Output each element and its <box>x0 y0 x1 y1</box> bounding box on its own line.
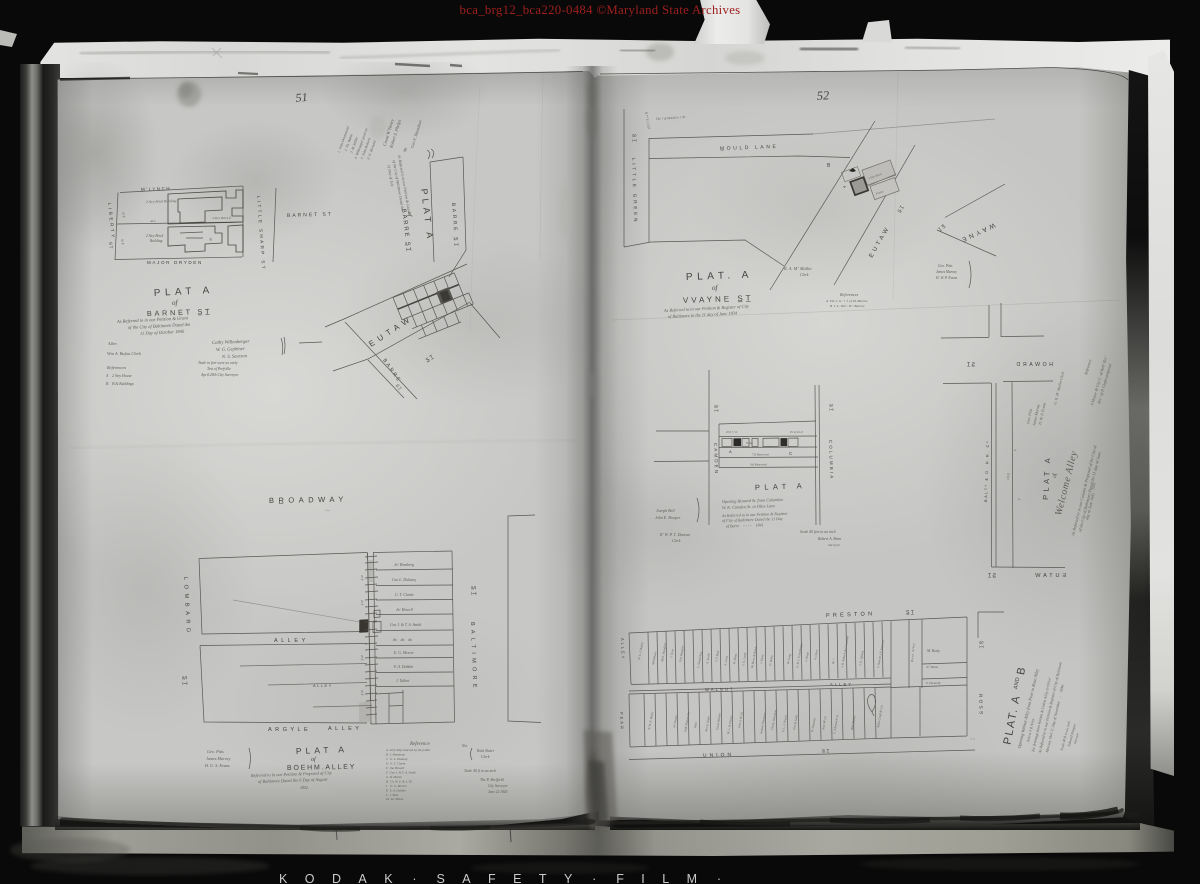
svg-text:Geo. Pitts: Geo. Pitts <box>207 749 224 754</box>
svg-text:The ? of Mould in ? 45′: The ? of Mould in ? 45′ <box>656 115 686 121</box>
svg-text:ALLEY: ALLEY <box>830 682 853 687</box>
svg-text:D G. T. Clarke: D G. T. Clarke <box>385 762 406 766</box>
svg-text:of Baltimore Dated the 6 Day o: of Baltimore Dated the 6 Day of August <box>258 777 329 784</box>
svg-text:a.: a. <box>1014 448 1017 452</box>
svg-text:PLAT A: PLAT A <box>296 744 348 756</box>
svg-text:MAJOR DRYDEN: MAJOR DRYDEN <box>147 260 203 265</box>
svg-text:Nº H. K. Bailey: Nº H. K. Bailey <box>647 711 654 732</box>
svg-text:Robert A. Birm: Robert A. Birm <box>817 537 841 541</box>
svg-text:20 ft: 20 ft <box>360 600 364 606</box>
svg-text:A 2 Stry House: A 2 Stry House <box>105 374 132 378</box>
svg-text:G R. Marsh: G R. Marsh <box>386 775 402 779</box>
svg-text:ALLEY: ALLEY <box>274 638 309 644</box>
svg-text:H. U. S. Evans: H. U. S. Evans <box>204 763 230 768</box>
svg-text:ST: ST <box>108 242 114 250</box>
svg-text:7 ft Reserved: 7 ft Reserved <box>752 453 769 457</box>
svg-text:A. Lantz: A. Lantz <box>723 655 729 667</box>
svg-text:Rʼ W. P. T. Duncan: Rʼ W. P. T. Duncan <box>659 532 690 537</box>
svg-text:52: 52 <box>816 88 829 103</box>
svg-text:Allen: Allen <box>107 341 116 346</box>
svg-text:LOMBARD: LOMBARD <box>182 577 191 637</box>
svg-text:June 22 1845: June 22 1845 <box>488 790 508 794</box>
svg-text:C. Albemarle St.: C. Albemarle St. <box>832 714 839 734</box>
svg-text:Building: Building <box>150 239 163 243</box>
svg-text:Test of Prefville: Test of Prefville <box>207 367 231 371</box>
svg-text:Jane Wº Co: Jane Wº Co <box>821 715 827 730</box>
svg-text:S̲T̲: S̲T̲ <box>714 404 719 413</box>
svg-text:LITTLE SHARP ST: LITTLE SHARP ST <box>256 196 266 271</box>
svg-text:2 Stry Brick Building: 2 Stry Brick Building <box>146 199 177 204</box>
svg-text:A 40 ft Alley laid out by the: A 40 ft Alley laid out by the public <box>385 748 431 752</box>
svg-text:A: A <box>729 449 732 454</box>
svg-text:EUTAW: EUTAW <box>367 313 415 348</box>
svg-text:BALTº & O. R.R. Cº: BALTº & O. R.R. Cº <box>984 440 990 502</box>
svg-text:J. B. Alsbach & Crausmith: J. B. Alsbach & Crausmith <box>840 635 850 668</box>
svg-text:30 ft: 30 ft <box>120 238 125 245</box>
svg-text:Wm Shultz: Wm Shultz <box>850 715 857 731</box>
svg-text:References: References <box>106 365 126 370</box>
svg-text:L. Sonderling: L. Sonderling <box>696 651 703 669</box>
svg-text:B J. Homberg: B J. Homberg <box>386 753 405 757</box>
svg-text:of Barre - - - - 1841: of Barre - - - - 1841 <box>726 522 764 528</box>
svg-text:F. A. Dobbin: F. A. Dobbin <box>393 665 413 669</box>
svg-text:G. R. Mʼ Mullin Clerk: G. R. Mʼ Mullin Clerk <box>1053 371 1065 405</box>
svg-text:N 7° E 213 ft: N 7° E 213 ft <box>644 110 651 130</box>
svg-text:J. Talbot: J. Talbot <box>396 679 410 683</box>
svg-text:9 ft Reserved: 9 ft Reserved <box>750 463 767 467</box>
svg-text:R. A. Mʼ Mullin: R. A. Mʼ Mullin <box>783 266 812 271</box>
svg-text:BALTIMORE: BALTIMORE <box>469 622 477 692</box>
svg-text:of: of <box>1051 472 1058 478</box>
svg-text:E. G. Mercer: E. G. Mercer <box>393 651 414 655</box>
svg-text:PLAT A: PLAT A <box>755 481 806 492</box>
svg-text:J. Olson: J. Olson <box>804 651 810 662</box>
svg-text:MʼLYNCH: MʼLYNCH <box>141 186 171 192</box>
svg-text:A. Jackle: A. Jackle <box>705 652 711 665</box>
svg-text:S̲T̲: S̲T̲ <box>829 403 834 412</box>
svg-text:Geo F. Shanahan: Geo F. Shanahan <box>409 120 422 149</box>
svg-text:20 ft: 20 ft <box>360 690 364 696</box>
svg-text:B. Hams: B. Hams <box>732 652 738 664</box>
svg-text:20 ft: 20 ft <box>360 655 364 661</box>
svg-text:McKilbane: McKilbane <box>651 651 658 666</box>
svg-text:135 ft: 135 ft <box>1006 473 1010 480</box>
svg-text:1852: 1852 <box>300 785 308 790</box>
svg-text:The P. Sheffield: The P. Sheffield <box>480 778 504 782</box>
svg-text:S̲T̲: S̲T̲ <box>906 610 915 616</box>
svg-text:C G. L. Dulaney: C G. L. Dulaney <box>386 757 408 761</box>
svg-text:33 ft: 33 ft <box>121 211 126 218</box>
svg-text:D. Behm: D. Behm <box>768 654 774 667</box>
svg-text:M. Beaty: M. Beaty <box>926 649 940 653</box>
svg-text:Wm A. Bufou Clerk: Wm A. Bufou Clerk <box>107 351 142 356</box>
svg-text:Scale 40 feet to an inch: Scale 40 feet to an inch <box>800 530 836 534</box>
svg-text:ALLEY: ALLEY <box>313 684 333 688</box>
svg-text:H. W. P. Evans: H. W. P. Evans <box>935 276 958 280</box>
svg-text:W. K. Camden St. in Olive Lane: W. K. Camden St. in Olive Lane <box>722 503 776 510</box>
svg-text:CAMDEN: CAMDEN <box>713 443 719 475</box>
svg-text:Nº G. F. Bailey: Nº G. F. Bailey <box>637 641 644 661</box>
svg-text:W. L. & Clancy: W. L. & Clancy <box>726 715 733 735</box>
svg-text:S̲T̲: S̲T̲ <box>425 353 437 363</box>
svg-text:I E. G. Mercer: I E. G. Mercer <box>385 784 408 788</box>
svg-text:F Geo J. & T. A. Smith: F Geo J. & T. A. Smith <box>385 771 416 775</box>
svg-text:M̲OULD LANE: M̲OULD LANE <box>720 144 779 152</box>
svg-text:Geo L. Dulaney: Geo L. Dulaney <box>392 578 416 582</box>
svg-text:Geo J. & T. A. Smith: Geo J. & T. A. Smith <box>390 623 421 627</box>
svg-text:4 Stry Brick ft: 4 Stry Brick ft <box>212 216 232 220</box>
svg-text:B. Simmons: B. Simmons <box>810 717 817 732</box>
svg-text:W. G. Gephlner: W. G. Gephlner <box>216 346 245 352</box>
svg-text:Hem: Hem <box>693 721 698 729</box>
svg-text:S̲T̲: S̲T̲ <box>936 223 947 234</box>
svg-text:HOWARD: HOWARD <box>1014 362 1053 368</box>
svg-text:ROSS: ROSS <box>978 694 984 717</box>
svg-text:Pl. of lot 21: Pl. of lot 21 <box>789 431 804 434</box>
svg-text:Reference: Reference <box>1083 358 1093 376</box>
svg-text:11 Day of October 1846: 11 Day of October 1846 <box>140 329 185 336</box>
svg-text:J. Gray: J. Gray <box>669 648 675 658</box>
svg-text:John Crail & Co: John Crail & Co <box>876 705 884 729</box>
svg-text:COLUMBIA: COLUMBIA <box>828 440 834 481</box>
svg-text:S̲T̲: S̲T̲ <box>966 362 976 368</box>
svg-text:EUTAW: EUTAW <box>1032 573 1066 579</box>
svg-text:S̲T̲: S̲T̲ <box>181 676 188 688</box>
svg-text:Rose Alley: Rose Alley <box>910 642 916 663</box>
svg-text:S̲T̲: S̲T̲ <box>896 203 905 213</box>
svg-text:K F. A. Dobbin: K F. A. Dobbin <box>385 789 406 793</box>
svg-text:S̲T̲: S̲T̲ <box>822 748 831 753</box>
svg-text:2 Stry Brick: 2 Stry Brick <box>146 234 164 238</box>
svg-text:Surveyor: Surveyor <box>828 543 841 547</box>
svg-text:S̲T̲: S̲T̲ <box>979 640 984 649</box>
svg-text:Joseph Bell: Joseph Bell <box>656 508 675 513</box>
svg-text:of: of <box>172 299 179 307</box>
svg-text:Seife Magner &c: Seife Magner &c <box>683 711 691 733</box>
svg-text:51: 51 <box>295 90 308 105</box>
svg-text:Teale 40 ft in an inch: Teale 40 ft in an inch <box>464 769 496 773</box>
svg-text:Grant Winkler: Grant Winkler <box>715 712 722 731</box>
svg-text:ARGYLE: ARGYLE <box>268 727 311 733</box>
svg-text:LITTLE GREEN: LITTLE GREEN <box>631 158 638 224</box>
svg-text:James Murray: James Murray <box>936 270 957 274</box>
svg-text:T. Donnelly: T. Donnelly <box>926 681 941 685</box>
svg-text:Robt Slater: Robt Slater <box>476 749 495 753</box>
svg-text:20 ft: 20 ft <box>360 575 364 581</box>
svg-text:PRESTON: PRESTON <box>826 611 876 619</box>
svg-text:James Murray: James Murray <box>206 756 230 761</box>
svg-text:1845: 1845 <box>1091 482 1097 490</box>
svg-text:AND: AND <box>1013 677 1021 690</box>
svg-text:of: of <box>311 756 317 763</box>
svg-text:W. ?: W. ? <box>831 658 836 664</box>
svg-text:PLAT. A: PLAT. A <box>686 270 753 283</box>
svg-text:Frame: Frame <box>745 442 754 445</box>
svg-text:PLAT A: PLAT A <box>154 285 214 299</box>
svg-text:N. S. Saurson: N. S. Saurson <box>221 353 248 359</box>
svg-text:Geo. Pitts: Geo. Pitts <box>938 264 953 268</box>
svg-text:John E. Hooper: John E. Hooper <box>655 515 681 520</box>
svg-text:EUTAW: EUTAW <box>869 225 892 259</box>
svg-text:Jnº Howell: Jnº Howell <box>396 608 413 612</box>
svg-text:A: A <box>842 185 847 189</box>
svg-text:M Jas Talbot: M Jas Talbot <box>385 797 403 801</box>
svg-text:WAYNE: WAYNE <box>958 221 996 244</box>
svg-text:Welcome Alley: Welcome Alley <box>1053 450 1080 517</box>
svg-text:B B & Buildings: B B & Buildings <box>106 382 134 386</box>
svg-text:G. & T. Friendberger: G. & T. Friendberger <box>795 641 804 668</box>
svg-text:B′: B′ <box>209 237 214 242</box>
svg-text:B J. L. Wmʼ. Wʼ. Barrow: B J. L. Wmʼ. Wʼ. Barrow <box>830 304 865 308</box>
svg-text:LIBERTY: LIBERTY <box>107 203 116 241</box>
svg-text:J. G. Lamb: J. G. Lamb <box>741 652 747 666</box>
svg-text:WALNUT: WALNUT <box>705 686 735 692</box>
svg-text:Jnº Mann: Jnº Mann <box>926 665 939 669</box>
svg-text:UNION: UNION <box>703 752 734 759</box>
svg-text:S̲T̲: S̲T̲ <box>470 586 476 597</box>
svg-text:Jnº Homberg: Jnº Homberg <box>394 563 414 567</box>
svg-text:Mrs E. Smith: Mrs E. Smith <box>704 715 711 733</box>
svg-text:Mr: Mr <box>402 146 409 154</box>
svg-text:C: C <box>789 451 792 456</box>
svg-text:× ×: × × <box>970 737 975 741</box>
svg-text:ALLEY: ALLEY <box>328 726 362 732</box>
svg-text:G. T. Clarke: G. T. Clarke <box>395 593 414 597</box>
svg-text:Geo Humpler: Geo Humpler <box>678 644 685 662</box>
svg-text:April 29th City Surveyor: April 29th City Surveyor <box>200 373 239 377</box>
svg-text:a.: a. <box>1018 497 1021 501</box>
svg-text:BARRE S̲T̲: BARRE S̲T̲ <box>450 203 459 249</box>
svg-text:of: of <box>712 284 719 292</box>
svg-text:20 ft ?? st: 20 ft ?? st <box>726 431 737 434</box>
svg-text:BR̲OADWAY: BR̲OADWAY <box>269 495 348 505</box>
svg-text:Clerk: Clerk <box>672 539 681 543</box>
svg-text:E Jno Howell: E Jno Howell <box>385 766 404 770</box>
svg-text:City Surveyor: City Surveyor <box>488 784 508 788</box>
svg-text:H Ch. W. F. & L. M.: H Ch. W. F. & L. M. <box>385 780 413 784</box>
svg-text:F. Rose & J.F. Sergeant: F. Rose & J.F. Sergeant <box>876 640 885 670</box>
svg-text:J. Klein: J. Klein <box>759 654 765 664</box>
svg-text:References: References <box>839 292 859 297</box>
svg-text:J. F. Reid: J. F. Reid <box>714 650 720 662</box>
svg-text:A. Olsen: A. Olsen <box>813 649 819 661</box>
svg-text:S̲T̲: S̲T̲ <box>987 573 997 579</box>
svg-text:S̲T̲: S̲T̲ <box>632 133 637 143</box>
svg-text:Clerk: Clerk <box>800 273 809 277</box>
svg-text:Reference: Reference <box>409 742 431 747</box>
svg-text:W. Lang: W. Lang <box>786 653 792 664</box>
svg-text:A The J. G. + J. of M. Barrow: A The J. G. + J. of M. Barrow <box>825 299 868 303</box>
svg-text:Geo & Galli: Geo & Galli <box>792 715 799 731</box>
svg-text:PLAT A: PLAT A <box>1041 455 1052 501</box>
svg-text:Geo A. W. Co: Geo A. W. Co <box>737 711 744 728</box>
svg-text:P. L. J. Pearls: P. L. J. Pearls <box>781 714 788 733</box>
svg-text:40.2: 40.2 <box>150 219 156 223</box>
svg-text:J. D. Upham: J. D. Upham <box>858 650 865 667</box>
svg-text:PEAR: PEAR <box>619 712 625 731</box>
svg-text:BARNET ST: BARNET ST <box>287 211 333 219</box>
svg-text:Teale in feet were as early: Teale in feet were as early <box>198 361 238 365</box>
svg-text:ALLEY: ALLEY <box>620 638 626 661</box>
svg-text:B: B <box>1015 667 1028 676</box>
svg-text:do do do: do do do <box>393 638 412 642</box>
svg-text:Not: Not <box>461 744 468 748</box>
svg-text:Clerk: Clerk <box>481 755 490 759</box>
svg-text:B: B <box>827 163 831 169</box>
